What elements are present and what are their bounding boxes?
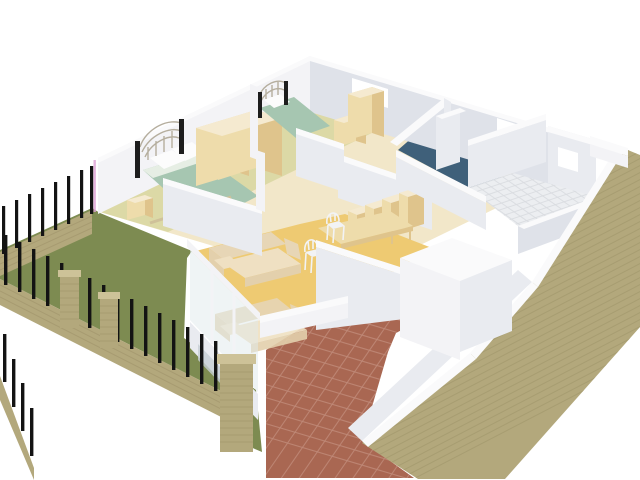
railing <box>28 194 31 242</box>
headboard-post <box>179 119 184 154</box>
railing <box>172 320 175 370</box>
pillar-cap <box>58 270 81 277</box>
headboard-post <box>258 92 262 118</box>
railing <box>200 334 203 384</box>
railing <box>144 306 147 356</box>
railing <box>12 359 15 407</box>
railing <box>3 334 6 382</box>
render-artifact-line <box>94 160 96 212</box>
brick-pillar <box>217 354 256 452</box>
railing <box>54 182 57 230</box>
pillar-cap <box>217 354 256 364</box>
railing <box>15 200 18 248</box>
railing <box>158 313 161 363</box>
railing <box>21 383 24 431</box>
railing <box>186 327 189 377</box>
pillar-body <box>220 360 253 452</box>
pillar-body <box>100 296 118 348</box>
railing <box>67 176 70 224</box>
railing <box>130 299 133 349</box>
headboard-post <box>284 81 288 105</box>
railing <box>90 166 93 214</box>
bedroom2-west-wall <box>250 84 258 160</box>
railing <box>88 278 91 328</box>
pillar-body <box>60 274 79 328</box>
wardrobe-side <box>372 87 384 137</box>
railing <box>32 249 35 299</box>
brick-pillar <box>58 270 81 328</box>
railing <box>18 242 21 292</box>
step-side <box>408 192 424 229</box>
railing <box>30 408 33 456</box>
pillar-cap <box>98 292 120 299</box>
house-render <box>0 0 640 480</box>
wardrobe <box>348 87 384 140</box>
railing <box>46 256 49 306</box>
railing <box>41 188 44 236</box>
brick-pillar <box>98 292 120 348</box>
railing <box>4 235 7 285</box>
railing <box>80 170 83 218</box>
railing <box>214 341 217 391</box>
headboard-post <box>135 141 140 178</box>
render-canvas <box>0 0 640 480</box>
